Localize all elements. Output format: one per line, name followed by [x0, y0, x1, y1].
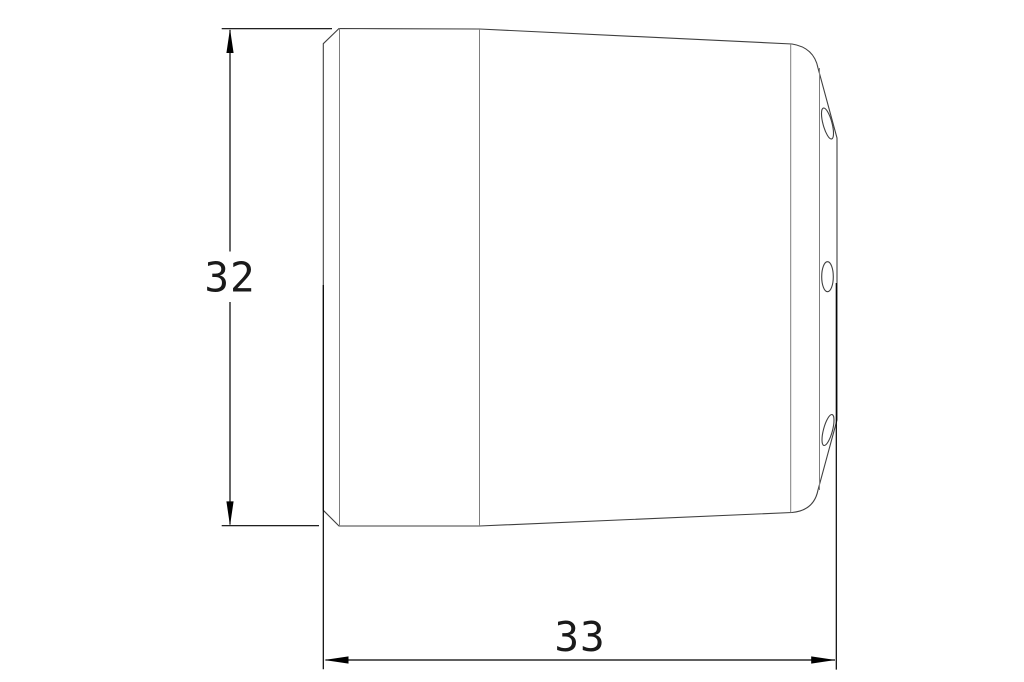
width-arrow-right-icon — [811, 656, 835, 663]
height-dimension-value: 32 — [204, 254, 255, 302]
width-dimension-value: 33 — [554, 613, 605, 661]
mounting-hole-middle — [822, 262, 834, 292]
height-arrow-down-icon — [226, 501, 233, 525]
width-arrow-left-icon — [324, 656, 348, 663]
part-outline — [323, 29, 837, 527]
drawing-area: 32 33 — [0, 0, 1024, 682]
technical-drawing-canvas: 32 33 — [0, 0, 1024, 682]
height-arrow-up-icon — [226, 29, 233, 53]
width-dimension — [323, 283, 836, 670]
